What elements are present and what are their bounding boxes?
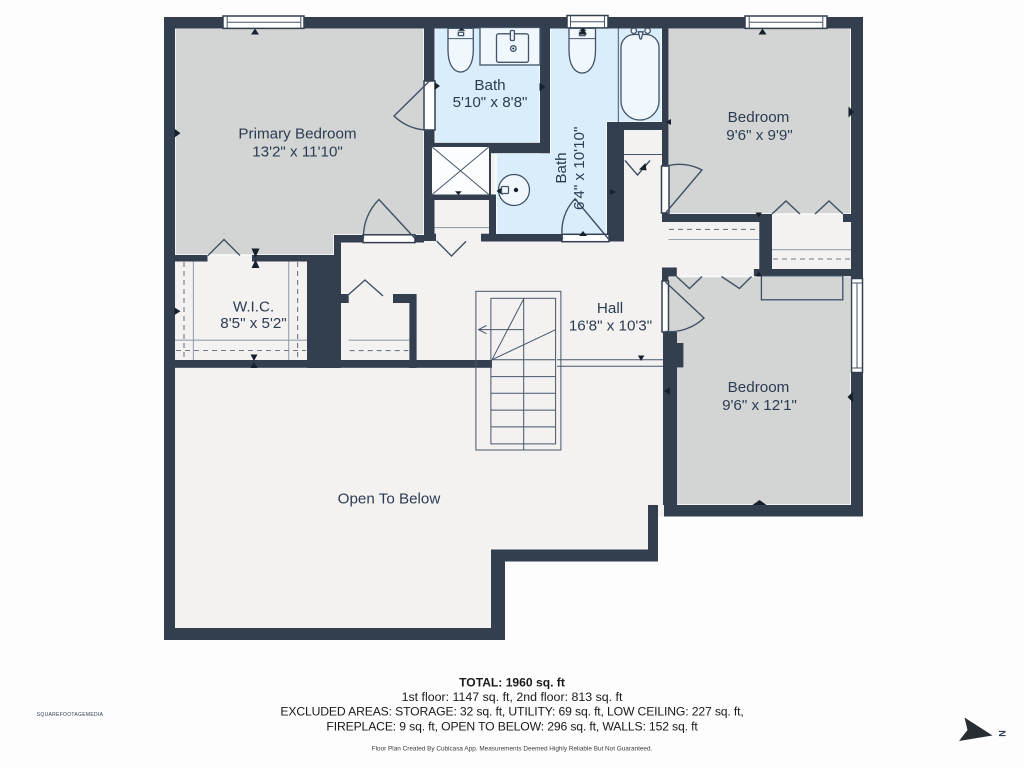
svg-text:TOTAL: 1960 sq. ft: TOTAL: 1960 sq. ft — [459, 675, 565, 689]
svg-text:Floor Plan Created By Cubicasa: Floor Plan Created By Cubicasa App. Meas… — [372, 746, 653, 753]
svg-text:EXCLUDED AREAS: STORAGE: 32 sq: EXCLUDED AREAS: STORAGE: 32 sq. ft, UTIL… — [280, 705, 743, 719]
svg-text:N: N — [997, 730, 1007, 737]
svg-text:8'5" x 5'2": 8'5" x 5'2" — [220, 315, 286, 332]
svg-text:1st floor: 1147 sq. ft, 2nd fl: 1st floor: 1147 sq. ft, 2nd floor: 813 s… — [402, 690, 623, 704]
svg-text:5'10" x 8'8": 5'10" x 8'8" — [453, 94, 528, 111]
svg-text:Hall: Hall — [597, 300, 623, 317]
svg-text:Bedroom: Bedroom — [728, 109, 790, 126]
svg-text:SQUAREFOOTAGEMEDIA: SQUAREFOOTAGEMEDIA — [37, 712, 104, 718]
svg-text:9'6" x 9'9": 9'6" x 9'9" — [726, 127, 792, 144]
svg-text:13'2" x 11'10": 13'2" x 11'10" — [252, 144, 343, 161]
svg-text:9'6" x 12'1": 9'6" x 12'1" — [722, 397, 797, 414]
svg-text:Bath: Bath — [553, 152, 570, 183]
svg-text:W.I.C.: W.I.C. — [233, 299, 274, 316]
svg-text:Bedroom: Bedroom — [728, 379, 790, 396]
svg-text:6'4" x 10'10": 6'4" x 10'10" — [571, 127, 588, 210]
svg-text:FIREPLACE: 9 sq. ft, OPEN TO B: FIREPLACE: 9 sq. ft, OPEN TO BELOW: 296 … — [326, 719, 698, 733]
svg-text:16'8" x 10'3": 16'8" x 10'3" — [569, 318, 652, 335]
svg-text:Bath: Bath — [474, 77, 505, 94]
svg-text:Open To Below: Open To Below — [338, 491, 441, 508]
svg-text:Primary Bedroom: Primary Bedroom — [238, 126, 356, 143]
